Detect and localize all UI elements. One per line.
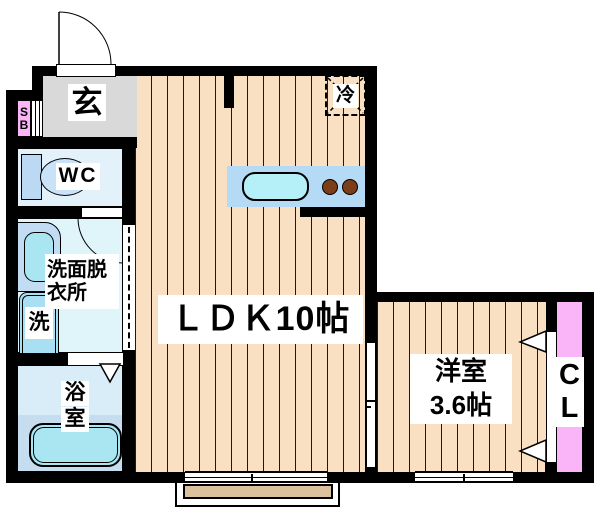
stove-burner: [342, 179, 358, 195]
bathroom-label: 浴: [61, 381, 89, 406]
wall-segment: [6, 207, 82, 218]
wc-door: [82, 207, 122, 218]
wall-segment: [122, 207, 135, 218]
closet-label: C L: [555, 357, 584, 427]
wc-label: WC: [56, 163, 100, 190]
wall-segment: [6, 90, 17, 483]
toilet-tank: [21, 154, 42, 200]
entrance-opening: [56, 64, 116, 77]
shoe-box-label: B: [20, 119, 29, 132]
genkan-label: 玄: [68, 84, 106, 121]
bathroom-label: 室: [61, 407, 89, 432]
shoe-box: S B: [17, 100, 31, 137]
ldk-label: ＬＤＫ10帖: [158, 295, 363, 344]
washroom-label: 洗面脱 衣所: [45, 254, 119, 309]
balcony-deck: [183, 484, 333, 499]
washing-machine-label: 洗: [25, 307, 53, 339]
western-room-label: 洋室 3.6帖: [410, 354, 512, 424]
sliding-door: [365, 343, 377, 467]
stove-burner: [322, 179, 338, 195]
ldk-floor: [135, 76, 365, 472]
washroom-door-opening: [123, 225, 135, 350]
ldk-window: [185, 471, 327, 483]
entrance-door-swing: [59, 12, 111, 64]
wall-segment: [6, 353, 68, 365]
floor-plan: S B 玄 WC 洗面脱 衣所 洗 浴 室: [0, 0, 600, 513]
kitchen-sink: [242, 172, 309, 201]
refrigerator-label: 冷: [333, 84, 358, 108]
wall-segment: [545, 462, 557, 473]
wall-segment: [365, 467, 377, 477]
wall-segment: [224, 76, 234, 108]
bathroom-door-opening: [68, 353, 123, 365]
shoe-box-label: S: [20, 106, 28, 119]
wall-segment: [6, 472, 185, 483]
wall-segment: [300, 207, 377, 217]
wall-segment: [6, 137, 137, 148]
wall-segment: [546, 302, 557, 332]
shoe-cabinet: [31, 100, 43, 137]
wall-segment: [373, 292, 594, 302]
western-room-window: [415, 471, 513, 483]
wall-segment: [123, 350, 135, 475]
wall-segment: [115, 66, 377, 76]
